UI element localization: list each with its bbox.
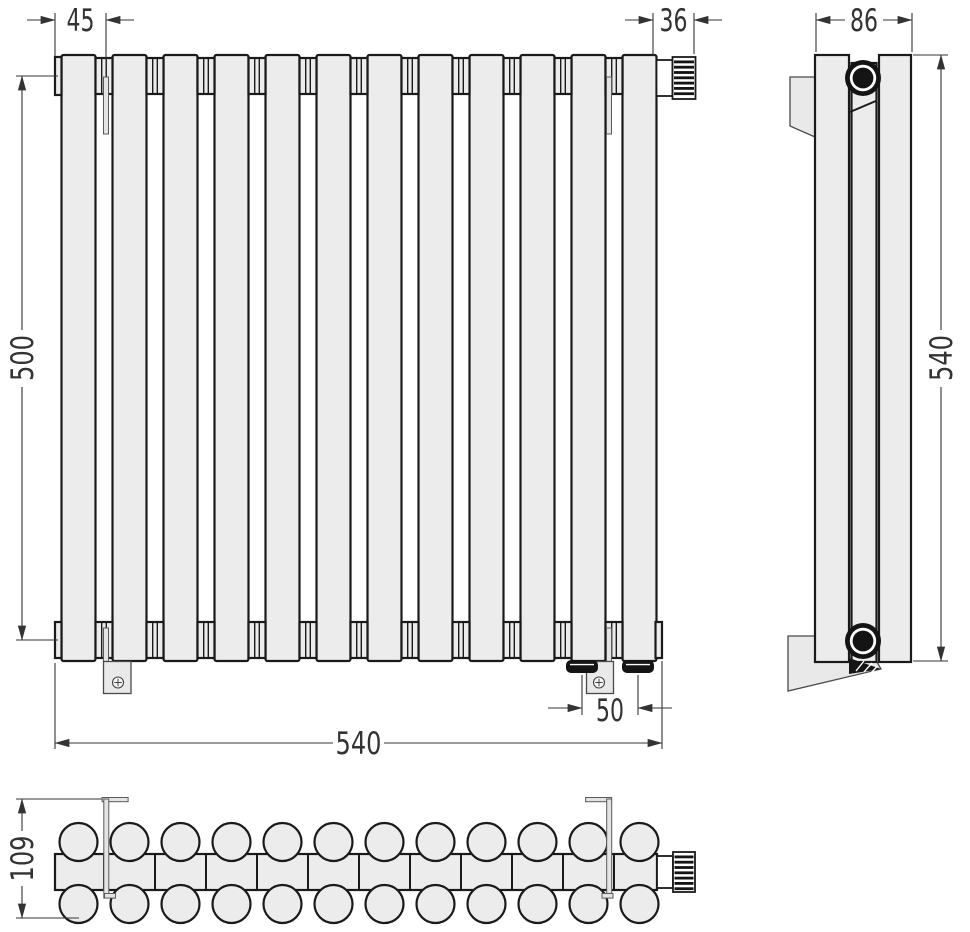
radiator-panel — [470, 55, 504, 661]
pipe-circle-front-row — [417, 823, 455, 861]
pipe-circle-rear-row — [60, 885, 98, 923]
pipe-circle-rear-row — [417, 885, 455, 923]
knurl-stripe — [674, 61, 694, 64]
pipe-boss-bottom — [845, 623, 881, 659]
side-column-rear — [879, 55, 911, 662]
pipe-circle-front-row — [570, 823, 608, 861]
pipe-circle-rear-row — [366, 885, 404, 923]
dim-label-50: 50 — [596, 693, 624, 729]
side-column-front — [815, 55, 849, 662]
knurl-stripe — [674, 76, 694, 79]
bottom-connector — [453, 622, 470, 658]
dimension-axis-height: 500 — [5, 76, 58, 640]
threaded-valve-connector-top — [657, 852, 695, 892]
knurl-stripe — [675, 877, 694, 880]
dimension-valve-connector: 36 — [625, 3, 722, 56]
pipe-circle-rear-row — [264, 885, 302, 923]
pipe-circle-rear-row — [315, 885, 353, 923]
screw-icon — [594, 677, 605, 688]
top-view — [55, 798, 695, 924]
pipe-circle-front-row — [60, 823, 98, 861]
threaded-valve-connector-front — [657, 57, 696, 99]
pipe-circle-rear-row — [111, 885, 149, 923]
pipe-circle-rear-row — [570, 885, 608, 923]
dim-label-109: 109 — [5, 836, 41, 882]
pipe-circle-front-row — [111, 823, 149, 861]
knurl-stripe — [675, 866, 694, 869]
pipe-boss-top — [845, 60, 881, 96]
pipe-circle-front-row — [264, 823, 302, 861]
wall-bracket-top-side — [790, 77, 815, 137]
knurl-stripe — [675, 887, 694, 890]
dim-label-86: 86 — [850, 3, 878, 39]
knurl-stripe — [674, 66, 694, 69]
top-connector — [198, 58, 215, 94]
radiator-panel — [266, 55, 300, 661]
dimension-side-height: 540 — [913, 55, 960, 661]
side-view — [788, 55, 911, 691]
bottom-connector — [504, 622, 521, 658]
wall-hook-bottom — [104, 628, 109, 662]
pipe-circle-front-row — [366, 823, 404, 861]
knurl-stripe — [674, 71, 694, 74]
pipe-circle-rear-row — [468, 885, 506, 923]
pipe-circle-front-row — [213, 823, 251, 861]
top-connector — [504, 58, 521, 94]
bottom-valve-cap-left — [566, 660, 598, 673]
knurl-stripe — [674, 87, 694, 90]
radiator-panel — [419, 55, 453, 661]
top-connector — [453, 58, 470, 94]
side-column-middle — [852, 63, 877, 662]
top-connector — [555, 58, 572, 94]
top-connector — [147, 58, 164, 94]
knurl-stripe — [674, 82, 694, 85]
radiator-panel — [62, 55, 96, 661]
dim-label-500: 500 — [5, 335, 41, 381]
top-connector — [249, 58, 266, 94]
pipe-circle-rear-row — [162, 885, 200, 923]
wall-hook-top — [607, 77, 612, 134]
dim-label-540-height: 540 — [924, 335, 960, 381]
bottom-connector — [300, 622, 317, 658]
screw-icon — [113, 677, 124, 688]
radiator-drawing: 45 36 86 500 — [0, 0, 970, 932]
knurl-stripe — [675, 856, 694, 859]
radiator-panel — [521, 55, 555, 661]
bottom-connector — [555, 622, 572, 658]
radiator-panel — [623, 55, 657, 661]
bottom-connector — [402, 622, 419, 658]
top-connector — [402, 58, 419, 94]
radiator-panel — [113, 55, 147, 661]
pipe-circle-rear-row — [519, 885, 557, 923]
top-connector — [300, 58, 317, 94]
knurl-stripe — [675, 861, 694, 864]
radiator-panel — [317, 55, 351, 661]
knurl-stripe — [675, 882, 694, 885]
bottom-connector — [249, 622, 266, 658]
wall-hook-bottom — [607, 628, 612, 662]
manifold-band — [55, 854, 657, 890]
dim-label-540-width: 540 — [336, 726, 382, 762]
technical-drawing-canvas: 45 36 86 500 — [0, 0, 970, 932]
end-cap-bottom-right — [656, 622, 663, 658]
pipe-circle-front-row — [519, 823, 557, 861]
dimension-side-depth: 86 — [816, 3, 912, 52]
radiator-panel — [215, 55, 249, 661]
knurl-stripe — [675, 871, 694, 874]
top-connector — [351, 58, 368, 94]
pipe-circle-front-row — [468, 823, 506, 861]
knurl-stripe — [674, 92, 694, 95]
pipe-circle-front-row — [162, 823, 200, 861]
bottom-connector — [198, 622, 215, 658]
dim-label-45: 45 — [67, 3, 95, 39]
dim-label-36: 36 — [660, 3, 688, 39]
pipe-circle-rear-row — [213, 885, 251, 923]
radiator-panel — [164, 55, 198, 661]
pipe-circle-rear-row — [621, 885, 659, 923]
pipe-circle-front-row — [315, 823, 353, 861]
pipe-circle-front-row — [621, 823, 659, 861]
bottom-connector — [351, 622, 368, 658]
radiator-panels — [62, 55, 657, 661]
bottom-valve-cap-right — [622, 660, 654, 673]
dimension-total-width: 540 — [55, 661, 662, 762]
front-view — [55, 55, 696, 694]
wall-hook-top — [104, 77, 109, 134]
radiator-panel — [572, 55, 606, 661]
radiator-panel — [368, 55, 402, 661]
bottom-connector — [147, 622, 164, 658]
